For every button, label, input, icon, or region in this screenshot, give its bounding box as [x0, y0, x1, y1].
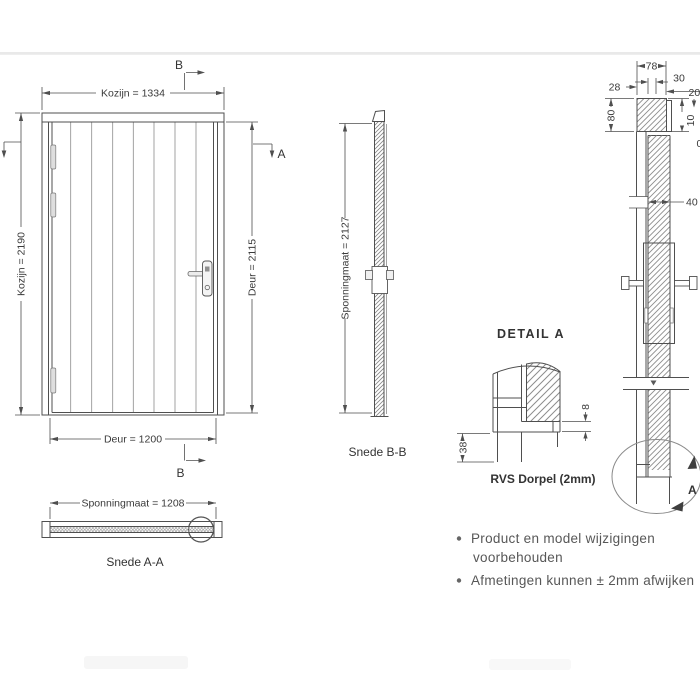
marker-b-bottom-label: B	[176, 466, 184, 480]
bullet-icon	[457, 536, 461, 540]
handle-cap-left	[622, 277, 630, 290]
dimension-sponningmaat-height: Sponningmaat = 2127	[339, 124, 372, 414]
dim-78-label: 78	[646, 61, 658, 73]
keyhole-mark	[645, 308, 648, 323]
sill-bottom	[637, 465, 673, 505]
dim-door-width-label: Deur = 1200	[104, 434, 162, 446]
dim-frame-width-label: Kozijn = 1334	[101, 88, 165, 100]
hinge	[51, 193, 56, 217]
door-leaf-profile	[648, 136, 670, 478]
section-marker-b-bottom: B	[176, 444, 206, 480]
handle-lever	[188, 272, 205, 277]
handle-stem-left	[629, 281, 644, 287]
detail-a-drawing	[493, 363, 560, 462]
faint-smudge	[489, 659, 571, 670]
dim-door-height-label: Deur = 2115	[247, 239, 259, 296]
lock-plate	[372, 267, 388, 294]
section-bb-caption: Snede B-B	[348, 445, 406, 459]
page-divider-band	[0, 52, 700, 55]
dim-10-label: 10	[685, 115, 697, 127]
note-line-1: Product en model wijzigingen	[471, 531, 655, 546]
section-bb-drawing	[366, 111, 394, 417]
dim-frame-height-label: Kozijn = 2190	[16, 232, 28, 296]
section-bb: Sponningmaat = 2127 Snede B-B	[339, 111, 407, 460]
break-symbol	[623, 378, 689, 390]
handle-spindle	[205, 267, 210, 272]
dim-38: 38	[457, 434, 494, 463]
handle-stem-right	[675, 281, 690, 287]
vertical-section: 78 30 28 20 80	[605, 61, 700, 514]
dim-20-label: 20	[689, 87, 700, 99]
dim-20-gap	[635, 78, 668, 94]
handle-right	[387, 271, 394, 280]
dim-30-label: 30	[673, 73, 685, 85]
dim-8-label: 8	[580, 404, 592, 410]
dim-8: 8	[562, 404, 592, 441]
note-line-3: Afmetingen kunnen ± 2mm afwijken	[471, 573, 694, 588]
front-elevation: Kozijn = 1334 Kozijn = 2190 Deur = 2115 …	[2, 58, 286, 480]
section-aa: Sponningmaat = 1208 Snede A-A	[42, 498, 222, 570]
dimension-door-height: Deur = 2115	[226, 122, 259, 413]
dim-sponningmaat-height-label: Sponningmaat = 2127	[340, 216, 352, 319]
door-leaf	[52, 122, 214, 413]
handle-left	[366, 271, 373, 280]
door-core-hatch	[50, 527, 214, 533]
detail-callout-label: A	[688, 483, 697, 497]
dim-20: 20	[689, 87, 700, 108]
dim-28: 28	[609, 82, 637, 94]
marker-b-top-label: B	[175, 58, 183, 72]
section-aa-caption: Snede A-A	[106, 555, 163, 569]
dim-80-label: 80	[606, 110, 618, 122]
note-line-2: voorbehouden	[473, 550, 563, 565]
section-marker-b-top: B	[175, 58, 205, 90]
technical-drawing-canvas: Kozijn = 1334 Kozijn = 2190 Deur = 2115 …	[0, 0, 700, 700]
section-marker-a-right: A	[253, 144, 286, 161]
dim-sponningmaat-width-label: Sponningmaat = 1208	[81, 498, 184, 510]
bullet-icon	[457, 578, 461, 582]
top-drip-cap	[373, 111, 385, 122]
dim-40-label: 40	[686, 197, 698, 209]
handle-plate	[203, 261, 213, 296]
dim-38-label: 38	[458, 442, 470, 454]
dim-10: 10	[668, 99, 697, 132]
marker-a-right-label: A	[278, 147, 286, 161]
faint-smudge	[84, 656, 188, 669]
frame-side-lines	[637, 132, 647, 478]
keyhole-mark	[670, 308, 673, 323]
door-bottom-hatched	[527, 363, 561, 422]
hinge	[51, 145, 56, 169]
detail-a: DETAIL A 38 8 RVS Dorpel (2mm)	[457, 327, 596, 486]
dimension-door-width: Deur = 1200	[50, 418, 216, 446]
dim-partial-clipped: 0	[697, 138, 700, 150]
section-marker-a-left	[2, 142, 21, 158]
detail-a-title: DETAIL A	[497, 327, 565, 341]
section-aa-drawing	[42, 517, 222, 542]
hinge	[51, 368, 56, 393]
dim-78: 78	[637, 61, 666, 96]
notes: Product en model wijzigingen voorbehoude…	[457, 531, 695, 588]
dimension-frame-height: Kozijn = 2190	[15, 113, 40, 415]
dim-28-label: 28	[609, 82, 621, 94]
dim-80: 80	[605, 99, 634, 132]
handle-cap-right	[690, 277, 698, 290]
dimension-frame-width: Kozijn = 1334	[42, 87, 224, 110]
dimension-sponningmaat-width: Sponningmaat = 1208	[50, 498, 216, 520]
detail-a-caption: RVS Dorpel (2mm)	[490, 472, 595, 486]
door-planks	[71, 123, 196, 413]
door-handle	[188, 261, 212, 296]
frame-head-profile	[637, 99, 672, 136]
